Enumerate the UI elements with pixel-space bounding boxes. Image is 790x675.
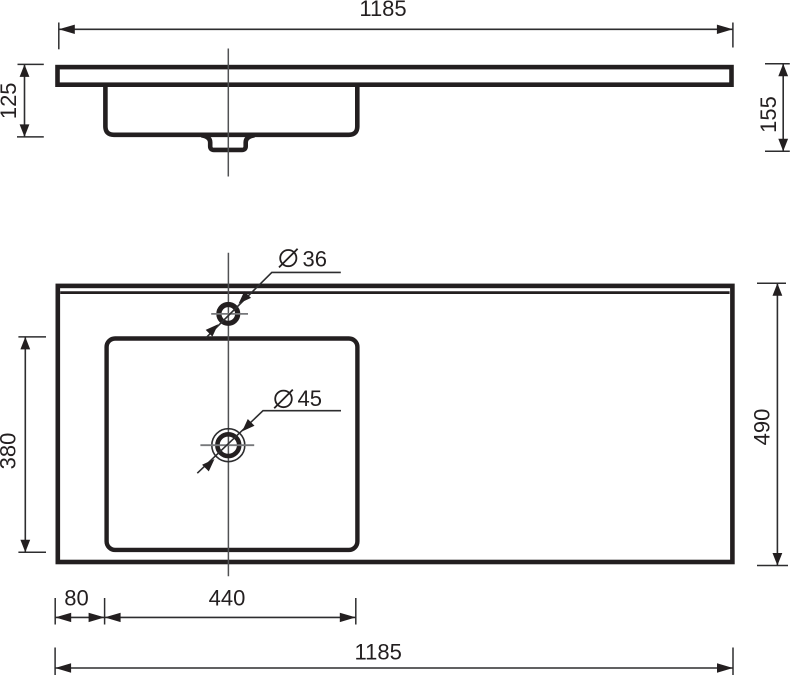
- svg-text:125: 125: [0, 82, 21, 119]
- svg-text:1185: 1185: [359, 0, 406, 21]
- svg-text:155: 155: [756, 96, 781, 133]
- svg-text:36: 36: [303, 246, 327, 271]
- svg-text:1185: 1185: [355, 640, 402, 665]
- svg-text:490: 490: [750, 409, 775, 446]
- svg-text:380: 380: [0, 433, 21, 470]
- svg-text:45: 45: [297, 386, 321, 411]
- svg-text:80: 80: [64, 585, 88, 610]
- svg-text:440: 440: [209, 585, 246, 610]
